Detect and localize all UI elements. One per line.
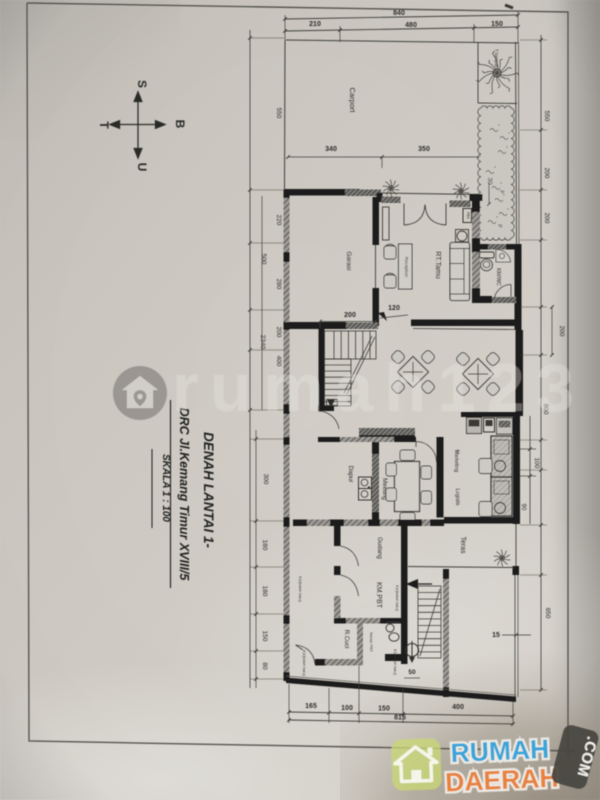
svg-text:220: 220 xyxy=(275,215,282,226)
svg-text:DRC Jl.Kemang Timur XVIII/5: DRC Jl.Kemang Timur XVIII/5 xyxy=(177,408,191,582)
svg-text:100: 100 xyxy=(533,458,540,469)
svg-text:180: 180 xyxy=(261,540,268,551)
svg-text:K1/(kolom baru): K1/(kolom baru) xyxy=(393,649,397,675)
svg-text:200: 200 xyxy=(275,327,282,338)
svg-text:KM/WC: KM/WC xyxy=(495,268,501,286)
svg-text:300: 300 xyxy=(262,474,269,485)
svg-text:200: 200 xyxy=(543,213,550,224)
svg-text:150: 150 xyxy=(378,706,390,713)
svg-text:280: 280 xyxy=(275,279,282,290)
svg-text:RT.Tamu: RT.Tamu xyxy=(434,251,441,279)
svg-text:340: 340 xyxy=(325,146,337,153)
svg-text:K1: K1 xyxy=(456,450,460,454)
svg-text:U: U xyxy=(135,163,149,172)
svg-text:2340: 2340 xyxy=(259,335,266,350)
svg-text:400: 400 xyxy=(452,704,464,711)
svg-text:Gudang: Gudang xyxy=(376,537,383,560)
svg-text:Reception: Reception xyxy=(404,257,409,278)
svg-text:B: B xyxy=(173,120,187,129)
svg-text:Garasi: Garasi xyxy=(345,251,352,270)
svg-text:rumah123: rumah123 xyxy=(172,350,576,426)
svg-text:Teras: Teras xyxy=(459,536,466,554)
svg-text:200: 200 xyxy=(344,312,356,319)
svg-text:15: 15 xyxy=(492,632,500,639)
svg-text:Carport: Carport xyxy=(348,87,357,113)
svg-text:200: 200 xyxy=(558,326,565,337)
svg-text:480: 480 xyxy=(405,22,417,29)
svg-text:50: 50 xyxy=(408,669,416,676)
svg-text:100: 100 xyxy=(341,705,353,712)
svg-text:150: 150 xyxy=(261,631,268,642)
svg-text:Km/wc PBT: Km/wc PBT xyxy=(369,632,373,653)
svg-text:180: 180 xyxy=(261,586,268,597)
svg-text:R.Cuci: R.Cuci xyxy=(343,630,350,649)
svg-text:200: 200 xyxy=(543,168,550,179)
svg-text:840: 840 xyxy=(393,10,405,17)
svg-text:Dapur: Dapur xyxy=(347,466,354,483)
svg-text:K1/(kolom baru): K1/(kolom baru) xyxy=(302,650,306,676)
svg-text:500: 500 xyxy=(260,254,267,265)
svg-text:DAERAH: DAERAH xyxy=(445,763,560,798)
svg-text:165: 165 xyxy=(305,703,317,710)
svg-text:K1/(kolom baru): K1/(kolom baru) xyxy=(298,576,302,602)
svg-text:T: T xyxy=(97,121,111,129)
svg-text:120: 120 xyxy=(388,305,400,312)
svg-text:DENAH LANTAI 1-: DENAH LANTAI 1- xyxy=(201,432,216,549)
svg-text:350: 350 xyxy=(418,146,430,153)
svg-text:S: S xyxy=(135,80,149,88)
svg-text:K1/(kolom baru): K1/(kolom baru) xyxy=(395,585,399,611)
svg-text:90: 90 xyxy=(520,504,526,511)
svg-text:PBX: PBX xyxy=(466,212,470,220)
svg-text:SKALA 1 : 100: SKALA 1 : 100 xyxy=(160,454,171,522)
svg-text:80: 80 xyxy=(261,662,268,670)
svg-text:30: 30 xyxy=(486,177,493,185)
svg-text:550: 550 xyxy=(275,108,282,119)
svg-text:815: 815 xyxy=(394,715,406,722)
svg-text:Logistik: Logistik xyxy=(454,489,460,506)
svg-text:KM.PBT: KM.PBT xyxy=(375,582,382,609)
svg-text:T.Sampah: T.Sampah xyxy=(494,49,499,69)
svg-text:550: 550 xyxy=(543,111,550,122)
svg-text:650: 650 xyxy=(544,608,551,619)
svg-text:210: 210 xyxy=(309,21,321,28)
svg-text:150: 150 xyxy=(491,21,503,28)
